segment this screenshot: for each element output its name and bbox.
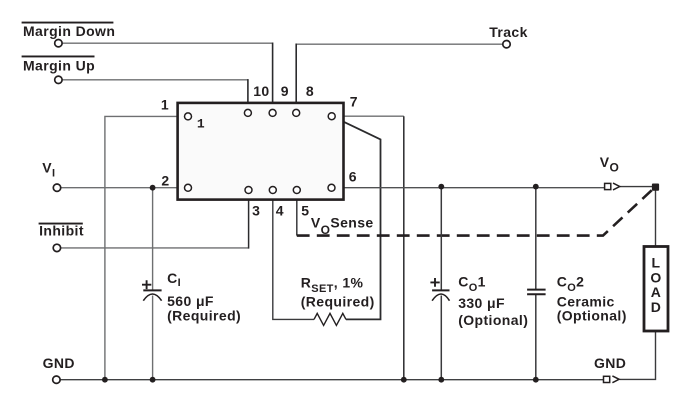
svg-text:(Optional): (Optional) xyxy=(458,312,528,328)
svg-text:Track: Track xyxy=(489,24,528,40)
svg-text:5: 5 xyxy=(301,203,309,219)
svg-text:O: O xyxy=(650,269,661,285)
svg-text:Margin Down: Margin Down xyxy=(23,23,115,39)
svg-text:(Optional): (Optional) xyxy=(557,307,627,323)
svg-text:(Required): (Required) xyxy=(301,293,375,309)
svg-text:(Required): (Required) xyxy=(167,308,241,324)
svg-text:8: 8 xyxy=(306,83,314,99)
svg-text:1: 1 xyxy=(161,96,169,112)
svg-text:Margin Up: Margin Up xyxy=(23,57,95,73)
svg-text:L: L xyxy=(652,255,661,271)
svg-text:3: 3 xyxy=(252,203,260,219)
svg-text:4: 4 xyxy=(276,203,284,219)
svg-text:1: 1 xyxy=(197,116,205,131)
svg-text:GND: GND xyxy=(43,355,75,371)
svg-text:Inhibit: Inhibit xyxy=(39,223,84,239)
svg-text:A: A xyxy=(651,284,662,300)
svg-text:D: D xyxy=(651,299,662,315)
svg-text:10: 10 xyxy=(253,83,269,99)
svg-text:7: 7 xyxy=(350,94,358,110)
svg-text:GND: GND xyxy=(594,355,626,371)
svg-text:2: 2 xyxy=(161,173,169,189)
svg-text:330 μF: 330 μF xyxy=(458,295,505,311)
svg-text:6: 6 xyxy=(349,168,357,184)
svg-text:9: 9 xyxy=(281,83,289,99)
